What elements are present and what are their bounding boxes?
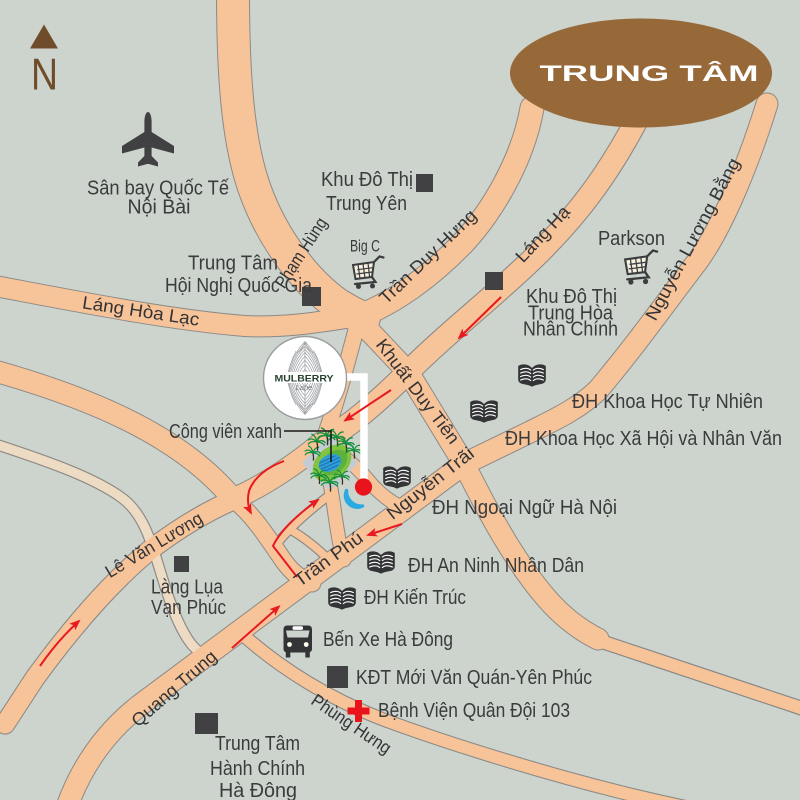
svg-text:ĐH An Ninh Nhân Dân: ĐH An Ninh Nhân Dân — [408, 555, 584, 577]
svg-text:ĐH Khoa Học Xã Hội và Nhân Văn: ĐH Khoa Học Xã Hội và Nhân Văn — [505, 428, 782, 450]
svg-text:Trung Tâm: Trung Tâm — [215, 733, 300, 755]
svg-text:Hà Đông: Hà Đông — [219, 780, 297, 800]
svg-text:ĐH Khoa Học Tự Nhiên: ĐH Khoa Học Tự Nhiên — [572, 391, 763, 413]
svg-text:Bến Xe Hà Đông: Bến Xe Hà Đông — [323, 629, 453, 651]
svg-text:Nhân Chính: Nhân Chính — [523, 319, 618, 341]
svg-text:Bệnh Viện Quân Đội 103: Bệnh Viện Quân Đội 103 — [378, 700, 570, 722]
svg-text:ĐH Ngoại Ngữ Hà Nội: ĐH Ngoại Ngữ Hà Nội — [432, 497, 617, 519]
svg-text:Trung Yên: Trung Yên — [326, 193, 407, 215]
svg-text:Big C: Big C — [350, 238, 380, 256]
svg-text:Parkson: Parkson — [598, 228, 665, 250]
svg-text:Vạn Phúc: Vạn Phúc — [151, 597, 226, 619]
svg-text:Hành Chính: Hành Chính — [210, 758, 305, 780]
svg-text:Làng Lụa: Làng Lụa — [151, 577, 224, 599]
svg-text:TRUNG TÂM: TRUNG TÂM — [540, 61, 759, 86]
svg-text:N: N — [31, 51, 58, 100]
svg-text:Lane: Lane — [296, 383, 313, 392]
svg-text:Nội Bài: Nội Bài — [128, 197, 191, 219]
svg-text:KĐT Mới Văn Quán-Yên Phúc: KĐT Mới Văn Quán-Yên Phúc — [356, 667, 592, 689]
svg-text:Trung Tâm: Trung Tâm — [188, 253, 278, 275]
svg-text:Khu Đô Thị: Khu Đô Thị — [321, 169, 413, 191]
svg-text:Công viên xanh: Công viên xanh — [169, 421, 282, 443]
svg-text:MULBERRY: MULBERRY — [275, 374, 334, 384]
svg-text:ĐH Kiến Trúc: ĐH Kiến Trúc — [364, 587, 466, 609]
